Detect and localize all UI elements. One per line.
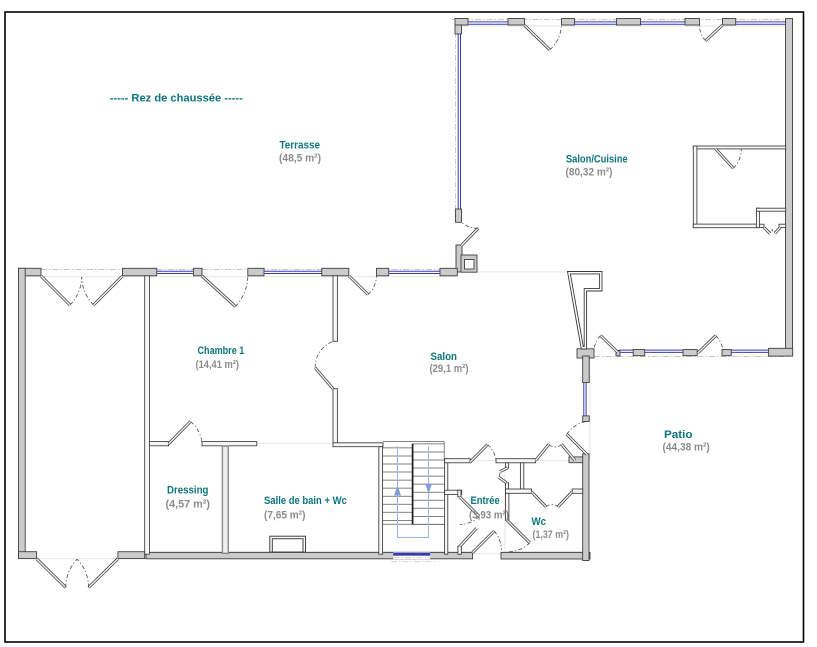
svg-text:Salle de bain + Wc: Salle de bain + Wc [264, 495, 347, 507]
svg-text:Chambre 1: Chambre 1 [198, 345, 245, 357]
svg-text:(4,57 m²): (4,57 m²) [166, 498, 211, 510]
svg-text:(80,32 m²): (80,32 m²) [566, 167, 613, 179]
svg-text:Dressing: Dressing [167, 484, 208, 496]
svg-text:Entrée: Entrée [471, 495, 500, 507]
svg-text:Salon/Cuisine: Salon/Cuisine [566, 153, 628, 165]
svg-text:Wc: Wc [532, 516, 547, 528]
svg-text:(14,41 m²): (14,41 m²) [196, 359, 240, 371]
svg-text:----- Rez de chaussée -----: ----- Rez de chaussée ----- [110, 93, 243, 105]
svg-text:Salon: Salon [431, 351, 458, 363]
svg-text:Patio: Patio [664, 429, 693, 441]
svg-text:(1,37 m²): (1,37 m²) [533, 529, 570, 541]
svg-text:(7,65 m²): (7,65 m²) [264, 509, 306, 521]
svg-text:(29,1 m²): (29,1 m²) [430, 363, 469, 375]
svg-text:(44,38 m²): (44,38 m²) [663, 442, 711, 454]
svg-text:(48,5 m²): (48,5 m²) [279, 153, 321, 165]
svg-text:(3,93 m²): (3,93 m²) [469, 509, 509, 521]
svg-text:Terrasse: Terrasse [280, 140, 321, 152]
